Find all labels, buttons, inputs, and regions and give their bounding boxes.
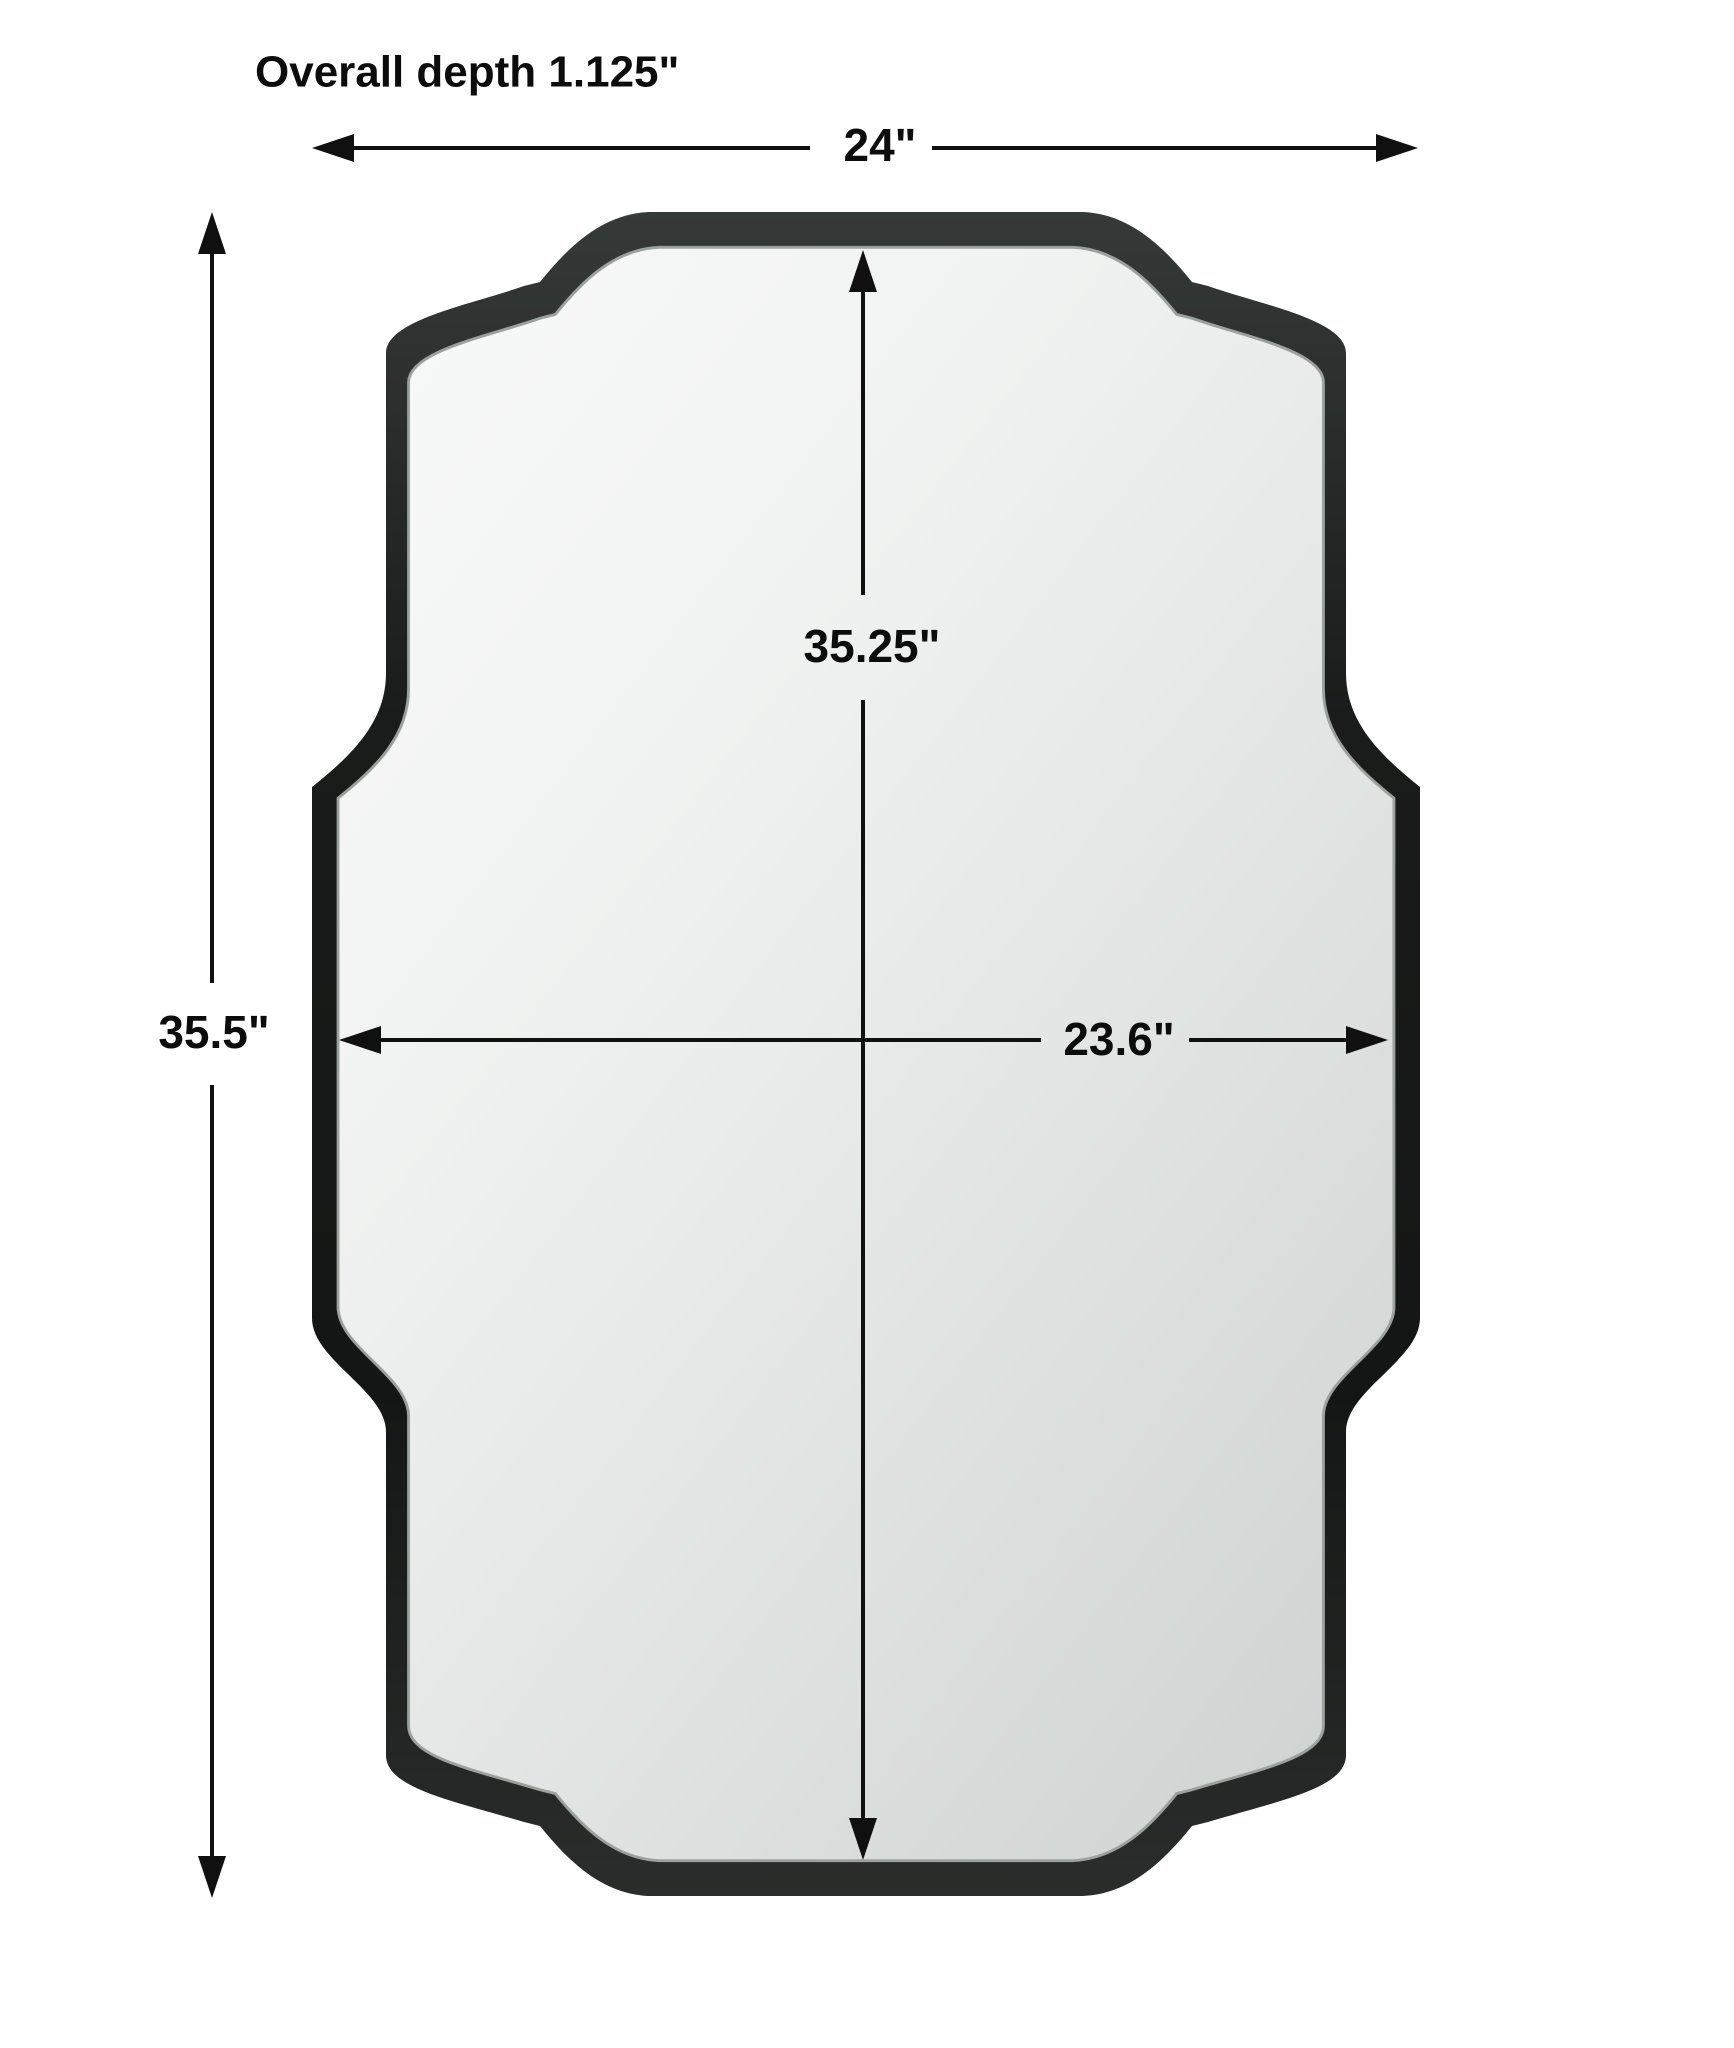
arrowhead-right [1376, 134, 1418, 162]
mirror-diagram-canvas: Overall depth 1.125" 24" 35.5" 35.25" [0, 0, 1734, 2048]
overall-depth-label: Overall depth 1.125" [255, 48, 679, 97]
dimension-overall-height: 35.5" [158, 212, 269, 1898]
arrowhead-down [198, 1856, 226, 1898]
inner-width-value: 23.6" [1063, 1013, 1174, 1065]
inner-height-value: 35.25" [804, 620, 941, 672]
arrowhead-up [198, 212, 226, 254]
mirror [312, 212, 1420, 1896]
product-dimension-diagram: Overall depth 1.125" 24" 35.5" 35.25" [0, 0, 1734, 2048]
overall-width-value: 24" [844, 119, 917, 171]
overall-height-value: 35.5" [158, 1006, 269, 1058]
mirror-glass [338, 247, 1394, 1860]
dimension-overall-width: 24" [312, 119, 1418, 171]
arrowhead-left [312, 134, 354, 162]
